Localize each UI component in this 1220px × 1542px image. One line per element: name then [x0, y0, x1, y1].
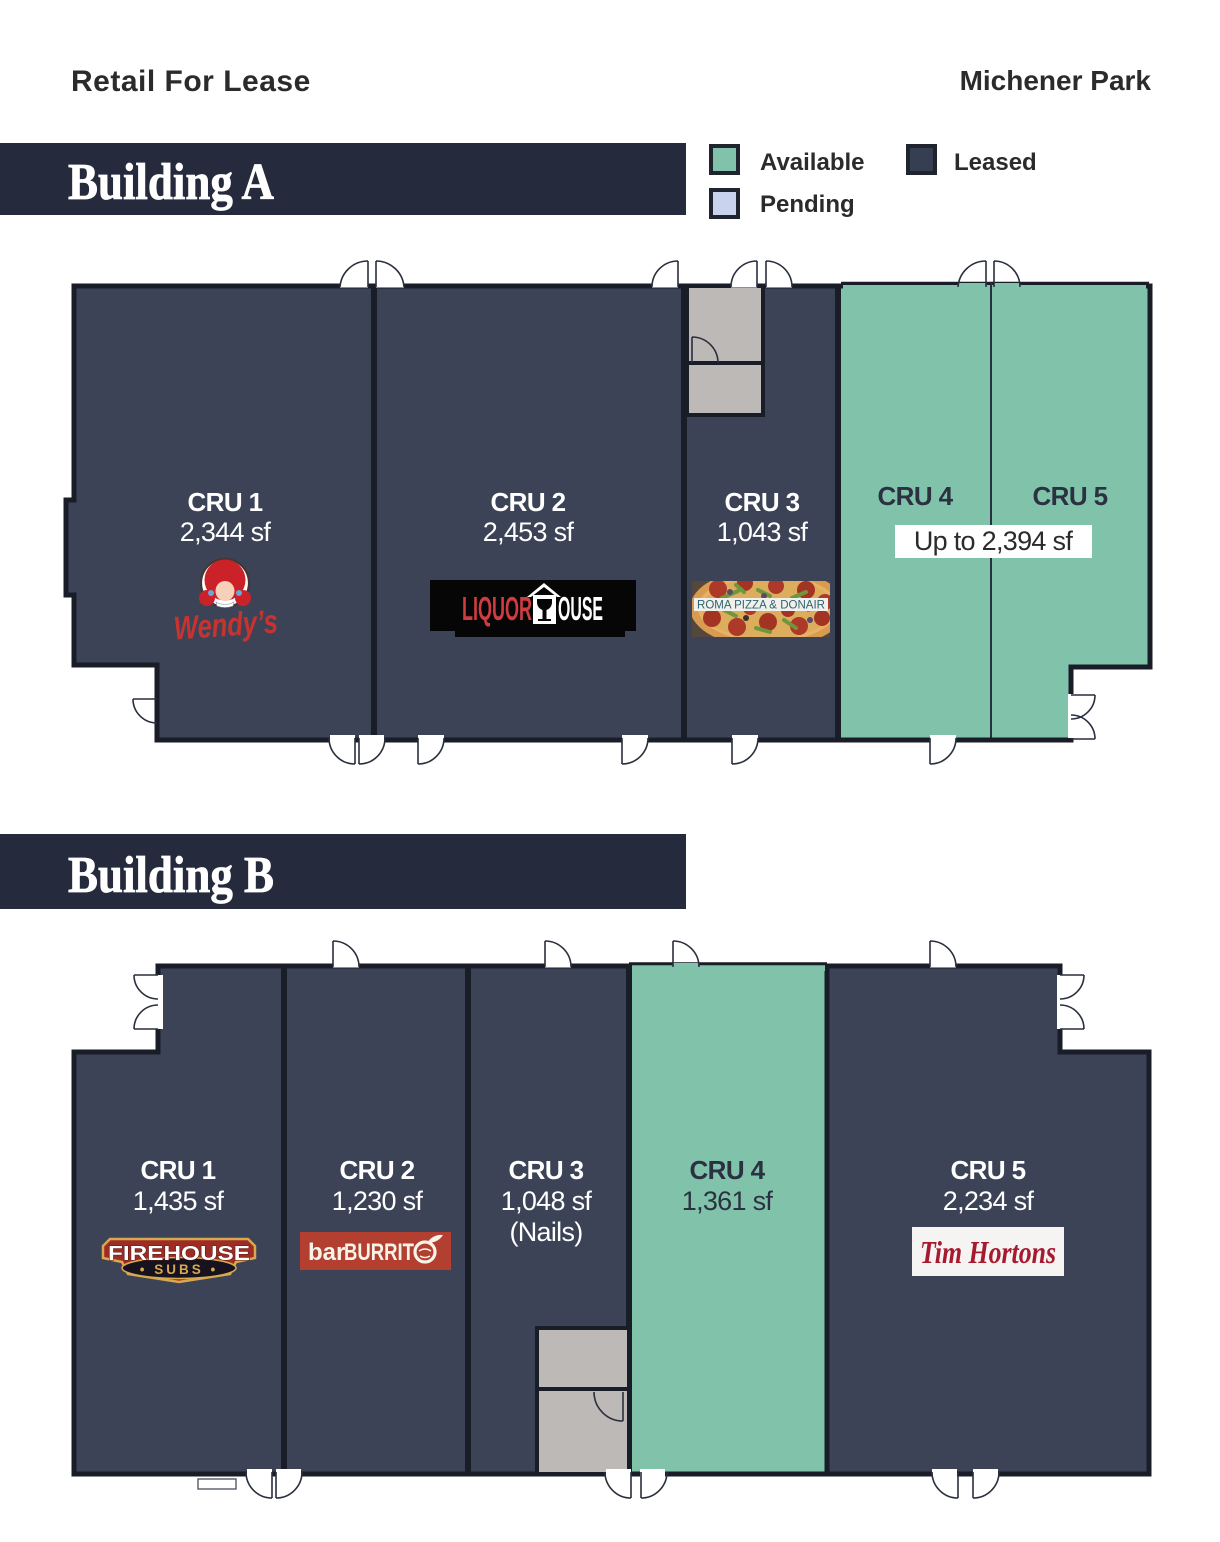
- svg-text:BURRIT: BURRIT: [344, 1239, 414, 1266]
- svg-text:(Nails): (Nails): [509, 1217, 582, 1247]
- svg-text:CRU 1: CRU 1: [140, 1155, 215, 1185]
- svg-text:CRU 4: CRU 4: [689, 1155, 765, 1185]
- svg-text:1,043 sf: 1,043 sf: [717, 517, 809, 547]
- svg-text:Pending: Pending: [760, 191, 855, 218]
- svg-text:2,234 sf: 2,234 sf: [943, 1186, 1035, 1216]
- svg-text:CRU 2: CRU 2: [490, 487, 565, 517]
- svg-text:Up to 2,394 sf: Up to 2,394 sf: [914, 526, 1074, 556]
- svg-text:CRU 5: CRU 5: [1032, 481, 1107, 511]
- svg-text:Michener Park: Michener Park: [960, 65, 1152, 96]
- svg-text:CRU 2: CRU 2: [339, 1155, 414, 1185]
- svg-text:Leased: Leased: [954, 149, 1037, 176]
- svg-text:Available: Available: [760, 149, 865, 176]
- svg-text:Wendy’s: Wendy’s: [173, 602, 279, 646]
- svg-text:Building B: Building B: [68, 847, 274, 904]
- svg-text:1,230 sf: 1,230 sf: [332, 1186, 424, 1216]
- svg-text:Tim Hortons: Tim Hortons: [920, 1234, 1056, 1270]
- svg-text:Building A: Building A: [68, 154, 274, 211]
- svg-text:OUSE: OUSE: [558, 590, 603, 627]
- svg-text:bar: bar: [308, 1239, 345, 1266]
- svg-text:1,435 sf: 1,435 sf: [133, 1186, 225, 1216]
- svg-text:2,344 sf: 2,344 sf: [180, 517, 272, 547]
- svg-text:CRU 3: CRU 3: [724, 487, 799, 517]
- svg-text:CRU 5: CRU 5: [950, 1155, 1025, 1185]
- svg-text:• SUBS •: • SUBS •: [140, 1262, 218, 1277]
- svg-text:2,453 sf: 2,453 sf: [483, 517, 575, 547]
- svg-text:1,361 sf: 1,361 sf: [682, 1186, 774, 1216]
- svg-text:ROMA PIZZA & DONAIR: ROMA PIZZA & DONAIR: [697, 600, 825, 612]
- svg-text:CRU 4: CRU 4: [877, 481, 953, 511]
- svg-text:CRU 1: CRU 1: [187, 487, 262, 517]
- svg-text:Retail For Lease: Retail For Lease: [71, 65, 311, 98]
- svg-text:CRU 3: CRU 3: [508, 1155, 583, 1185]
- svg-text:LIQUOR: LIQUOR: [462, 590, 532, 627]
- svg-text:1,048 sf: 1,048 sf: [501, 1186, 593, 1216]
